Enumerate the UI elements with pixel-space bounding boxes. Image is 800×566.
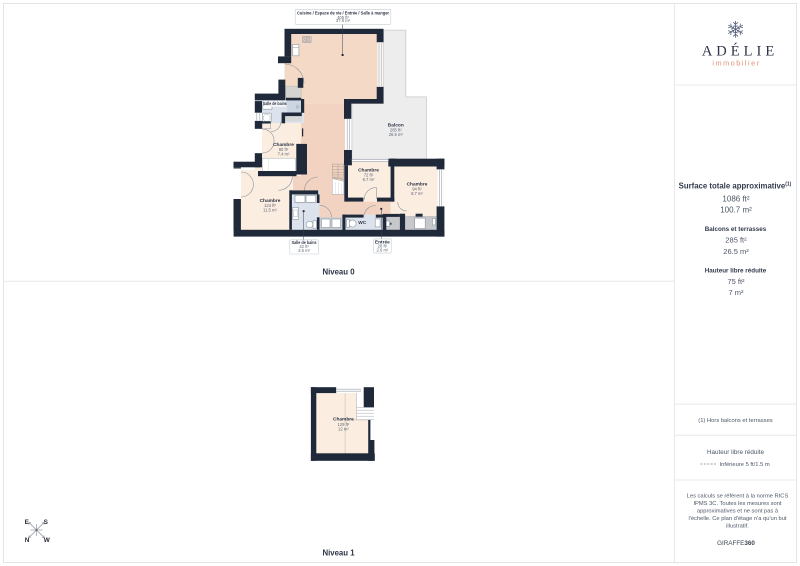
svg-text:l'échelle. Ce plan d'étage n'a: l'échelle. Ce plan d'étage n'a qu'un but — [688, 516, 786, 522]
svg-text:8.7 m²: 8.7 m² — [411, 191, 423, 196]
svg-text:illustratif.: illustratif. — [726, 524, 749, 530]
svg-text:1086 ft²: 1086 ft² — [722, 194, 749, 203]
svg-text:Surface totale approximative(1: Surface totale approximative(1) — [679, 181, 792, 190]
svg-text:75 ft²: 75 ft² — [727, 277, 745, 286]
svg-text:ADÉLIE: ADÉLIE — [702, 43, 778, 60]
svg-text:Balcons et terrasses: Balcons et terrasses — [705, 226, 767, 233]
svg-text:100.7 m²: 100.7 m² — [720, 206, 752, 215]
svg-text:37.6 m²: 37.6 m² — [336, 18, 351, 23]
svg-text:WC: WC — [358, 220, 367, 226]
svg-text:N: N — [25, 537, 30, 544]
svg-text:S: S — [44, 519, 49, 526]
svg-text:immobilier: immobilier — [712, 58, 760, 67]
svg-text:Salle de bains: Salle de bains — [263, 101, 287, 107]
svg-text:Hauteur libre réduite: Hauteur libre réduite — [705, 267, 767, 274]
svg-text:Les calculs se réfèrent à la n: Les calculs se réfèrent à la norme RICS — [687, 494, 789, 500]
svg-text:Niveau 0: Niveau 0 — [322, 268, 355, 277]
svg-text:Niveau 1: Niveau 1 — [322, 548, 355, 557]
svg-text:6.7 m²: 6.7 m² — [363, 177, 375, 182]
svg-text:26.5 m²: 26.5 m² — [723, 247, 749, 256]
svg-text:GIRAFFE360: GIRAFFE360 — [717, 540, 755, 547]
svg-text:26.5 m²: 26.5 m² — [389, 132, 404, 137]
svg-text:12 m²: 12 m² — [338, 427, 349, 432]
svg-text:W: W — [44, 537, 51, 544]
svg-text:approximatives et ne sont pas: approximatives et ne sont pas à — [697, 509, 779, 515]
svg-text:3.5 m²: 3.5 m² — [298, 248, 310, 253]
svg-text:E: E — [25, 519, 30, 526]
svg-text:11.5 m²: 11.5 m² — [263, 207, 277, 212]
svg-text:2.6 m²: 2.6 m² — [376, 247, 388, 252]
svg-text:285 ft²: 285 ft² — [725, 236, 747, 245]
svg-text:(1) Hors balcons et terrasses: (1) Hors balcons et terrasses — [698, 418, 773, 424]
svg-text:IPMS 3C. Toutes les mesures so: IPMS 3C. Toutes les mesures sont — [693, 501, 781, 507]
svg-text:Hauteur libre réduite: Hauteur libre réduite — [707, 449, 765, 456]
svg-text:7 m²: 7 m² — [729, 288, 745, 297]
svg-text:7.4 m²: 7.4 m² — [278, 152, 290, 157]
svg-text:Inférieure 5 ft/1.5 m: Inférieure 5 ft/1.5 m — [720, 462, 770, 468]
